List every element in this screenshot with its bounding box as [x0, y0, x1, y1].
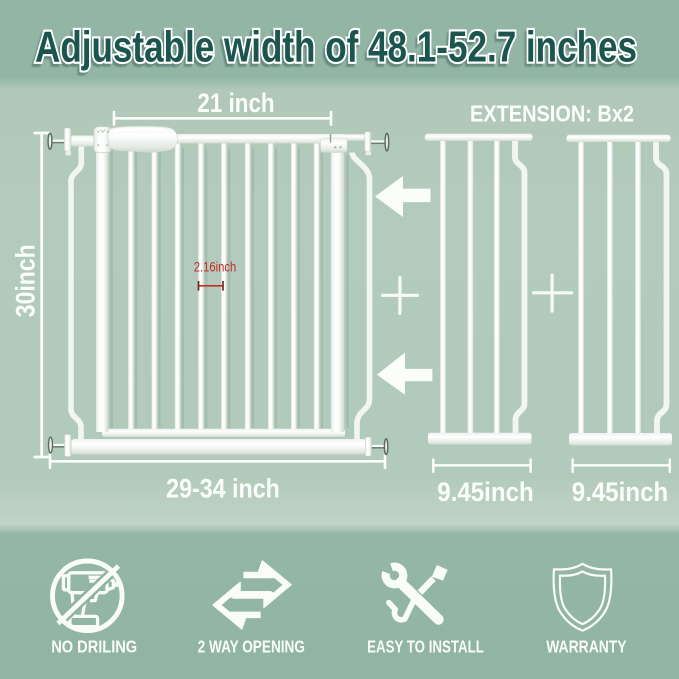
svg-text:9.45inch: 9.45inch: [572, 477, 668, 507]
svg-text:21 inch: 21 inch: [197, 88, 274, 118]
svg-text:EASY TO INSTALL: EASY TO INSTALL: [367, 636, 484, 656]
svg-text:EXTENSION: Bx2: EXTENSION: Bx2: [470, 100, 634, 126]
svg-text:30inch: 30inch: [11, 244, 41, 317]
svg-text:NO DRILING: NO DRILING: [51, 636, 137, 656]
svg-text:Adjustable width of 48.1-52.7: Adjustable width of 48.1-52.7 inches: [35, 24, 637, 72]
svg-text:2.16inch: 2.16inch: [194, 260, 237, 275]
svg-text:WARRANTY: WARRANTY: [546, 636, 627, 656]
svg-text:29-34 inch: 29-34 inch: [166, 474, 280, 504]
svg-text:2 WAY OPENING: 2 WAY OPENING: [198, 636, 305, 656]
svg-text:9.45inch: 9.45inch: [437, 477, 533, 507]
